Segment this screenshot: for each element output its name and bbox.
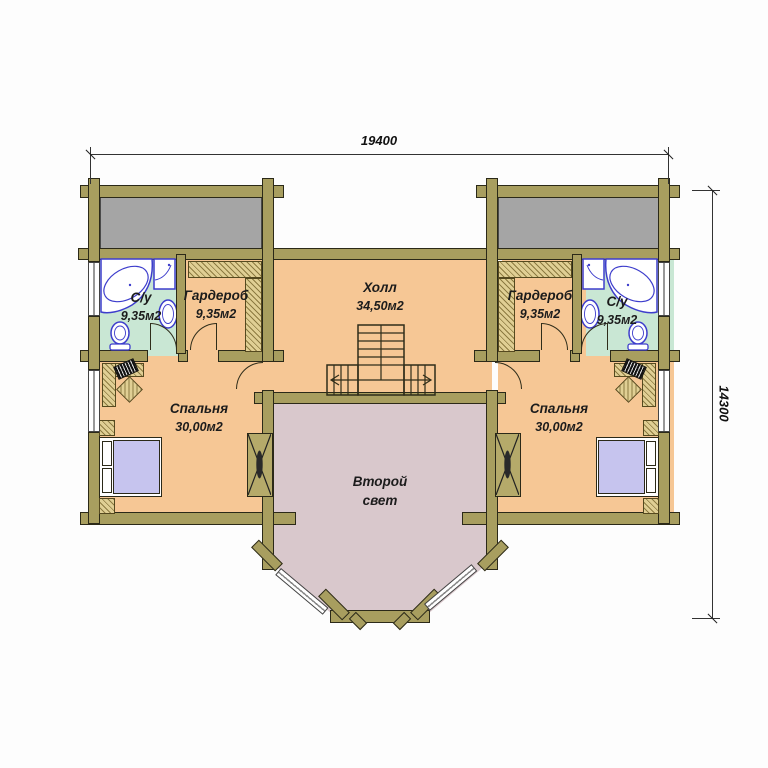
wardrobe-shelving <box>498 261 572 278</box>
room-name: Гардероб <box>184 286 249 305</box>
wall <box>658 316 670 370</box>
dimension-line-right <box>712 190 713 618</box>
room-name: С/у <box>597 292 638 311</box>
nightstand <box>99 420 115 436</box>
nightstand <box>643 420 659 436</box>
window <box>658 262 670 316</box>
wall <box>80 185 284 198</box>
room-name: Спальня <box>530 399 588 418</box>
room-label-hall: Холл 34,50м2 <box>356 278 403 316</box>
wall <box>476 185 680 198</box>
floor-plan: Холл 34,50м2 С/у 9,35м2 Гардероб 9,35м2 … <box>0 0 768 768</box>
bed-right-pillow <box>646 441 656 466</box>
room-area: 30,00м2 <box>530 418 588 437</box>
room-area: 34,50м2 <box>356 297 403 316</box>
dimension-line-top <box>90 154 668 155</box>
room-name: С/у <box>121 288 162 307</box>
staircase <box>326 324 436 398</box>
bed-right-mattress <box>598 440 645 494</box>
dimension-witness <box>692 618 720 619</box>
window <box>88 262 100 316</box>
room-label-wardrobe-right: Гардероб 9,35м2 <box>508 286 573 324</box>
wall <box>88 316 100 370</box>
room-name: Спальня <box>170 399 228 418</box>
dimension-witness <box>692 190 720 191</box>
wall <box>262 178 274 362</box>
wall <box>658 178 670 262</box>
room-label-wardrobe-left: Гардероб 9,35м2 <box>184 286 249 324</box>
bed-left-mattress <box>113 440 160 494</box>
window <box>88 370 100 432</box>
room-label-second-light: Второй свет <box>335 472 425 510</box>
dimension-height-label: 14300 <box>717 354 732 454</box>
room-area: 30,00м2 <box>170 418 228 437</box>
bed-left-pillow <box>102 468 112 493</box>
room-label-bedroom-left: Спальня 30,00м2 <box>170 399 228 437</box>
inner-window-right <box>495 433 521 497</box>
room-label-bathroom-right: С/у 9,35м2 <box>597 292 638 330</box>
bed-right-pillow <box>646 468 656 493</box>
room-area: 9,35м2 <box>508 305 573 324</box>
room-label-bedroom-right: Спальня 30,00м2 <box>530 399 588 437</box>
inner-window-left <box>247 433 273 497</box>
room-name: Холл <box>356 278 403 297</box>
bed-left-pillow <box>102 441 112 466</box>
wall <box>88 178 100 262</box>
wall <box>486 178 498 362</box>
room-name: Второй свет <box>335 472 425 510</box>
nightstand <box>99 498 115 514</box>
room-name: Гардероб <box>508 286 573 305</box>
wall <box>572 254 582 354</box>
roof-area-left <box>100 197 262 249</box>
wardrobe-shelving <box>188 261 262 278</box>
room-area: 9,35м2 <box>121 307 162 326</box>
dimension-width-label: 19400 <box>329 133 429 148</box>
wall <box>658 432 670 524</box>
room-area: 9,35м2 <box>597 311 638 330</box>
roof-area-right <box>498 197 660 249</box>
room-area: 9,35м2 <box>184 305 249 324</box>
window <box>658 370 670 432</box>
nightstand <box>643 498 659 514</box>
room-label-bathroom-left: С/у 9,35м2 <box>121 288 162 326</box>
